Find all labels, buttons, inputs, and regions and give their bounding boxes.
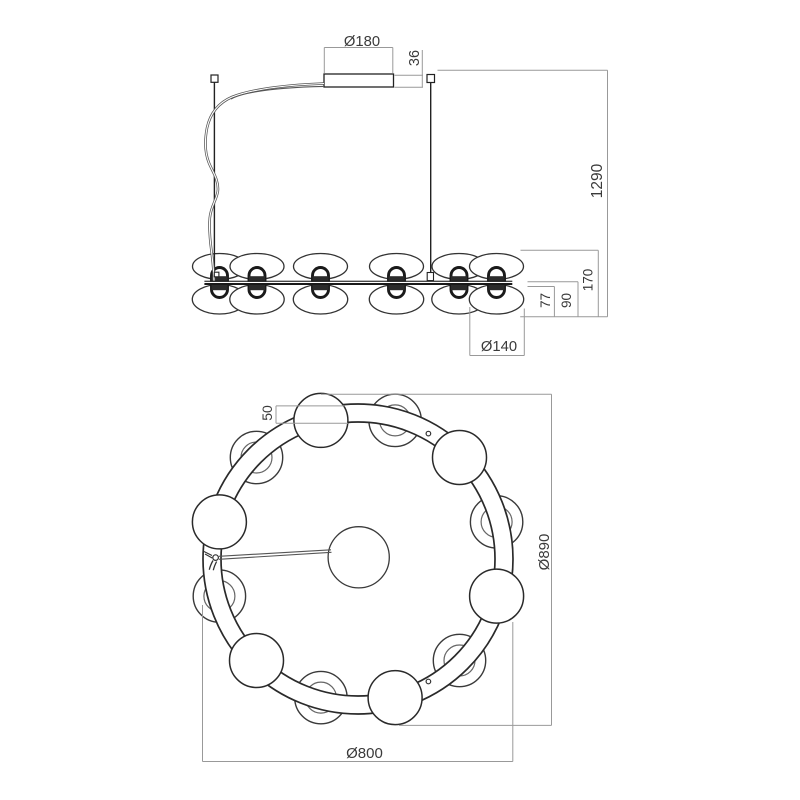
svg-text:Ø180: Ø180 — [344, 34, 380, 50]
svg-text:36: 36 — [407, 50, 423, 66]
svg-text:1290: 1290 — [589, 163, 606, 198]
svg-text:Ø890: Ø890 — [536, 534, 553, 571]
svg-text:Ø800: Ø800 — [346, 745, 383, 762]
svg-text:90: 90 — [559, 293, 574, 308]
svg-text:50: 50 — [259, 405, 275, 421]
svg-text:77: 77 — [538, 293, 553, 308]
svg-text:Ø140: Ø140 — [481, 339, 517, 355]
svg-text:170: 170 — [581, 269, 596, 292]
